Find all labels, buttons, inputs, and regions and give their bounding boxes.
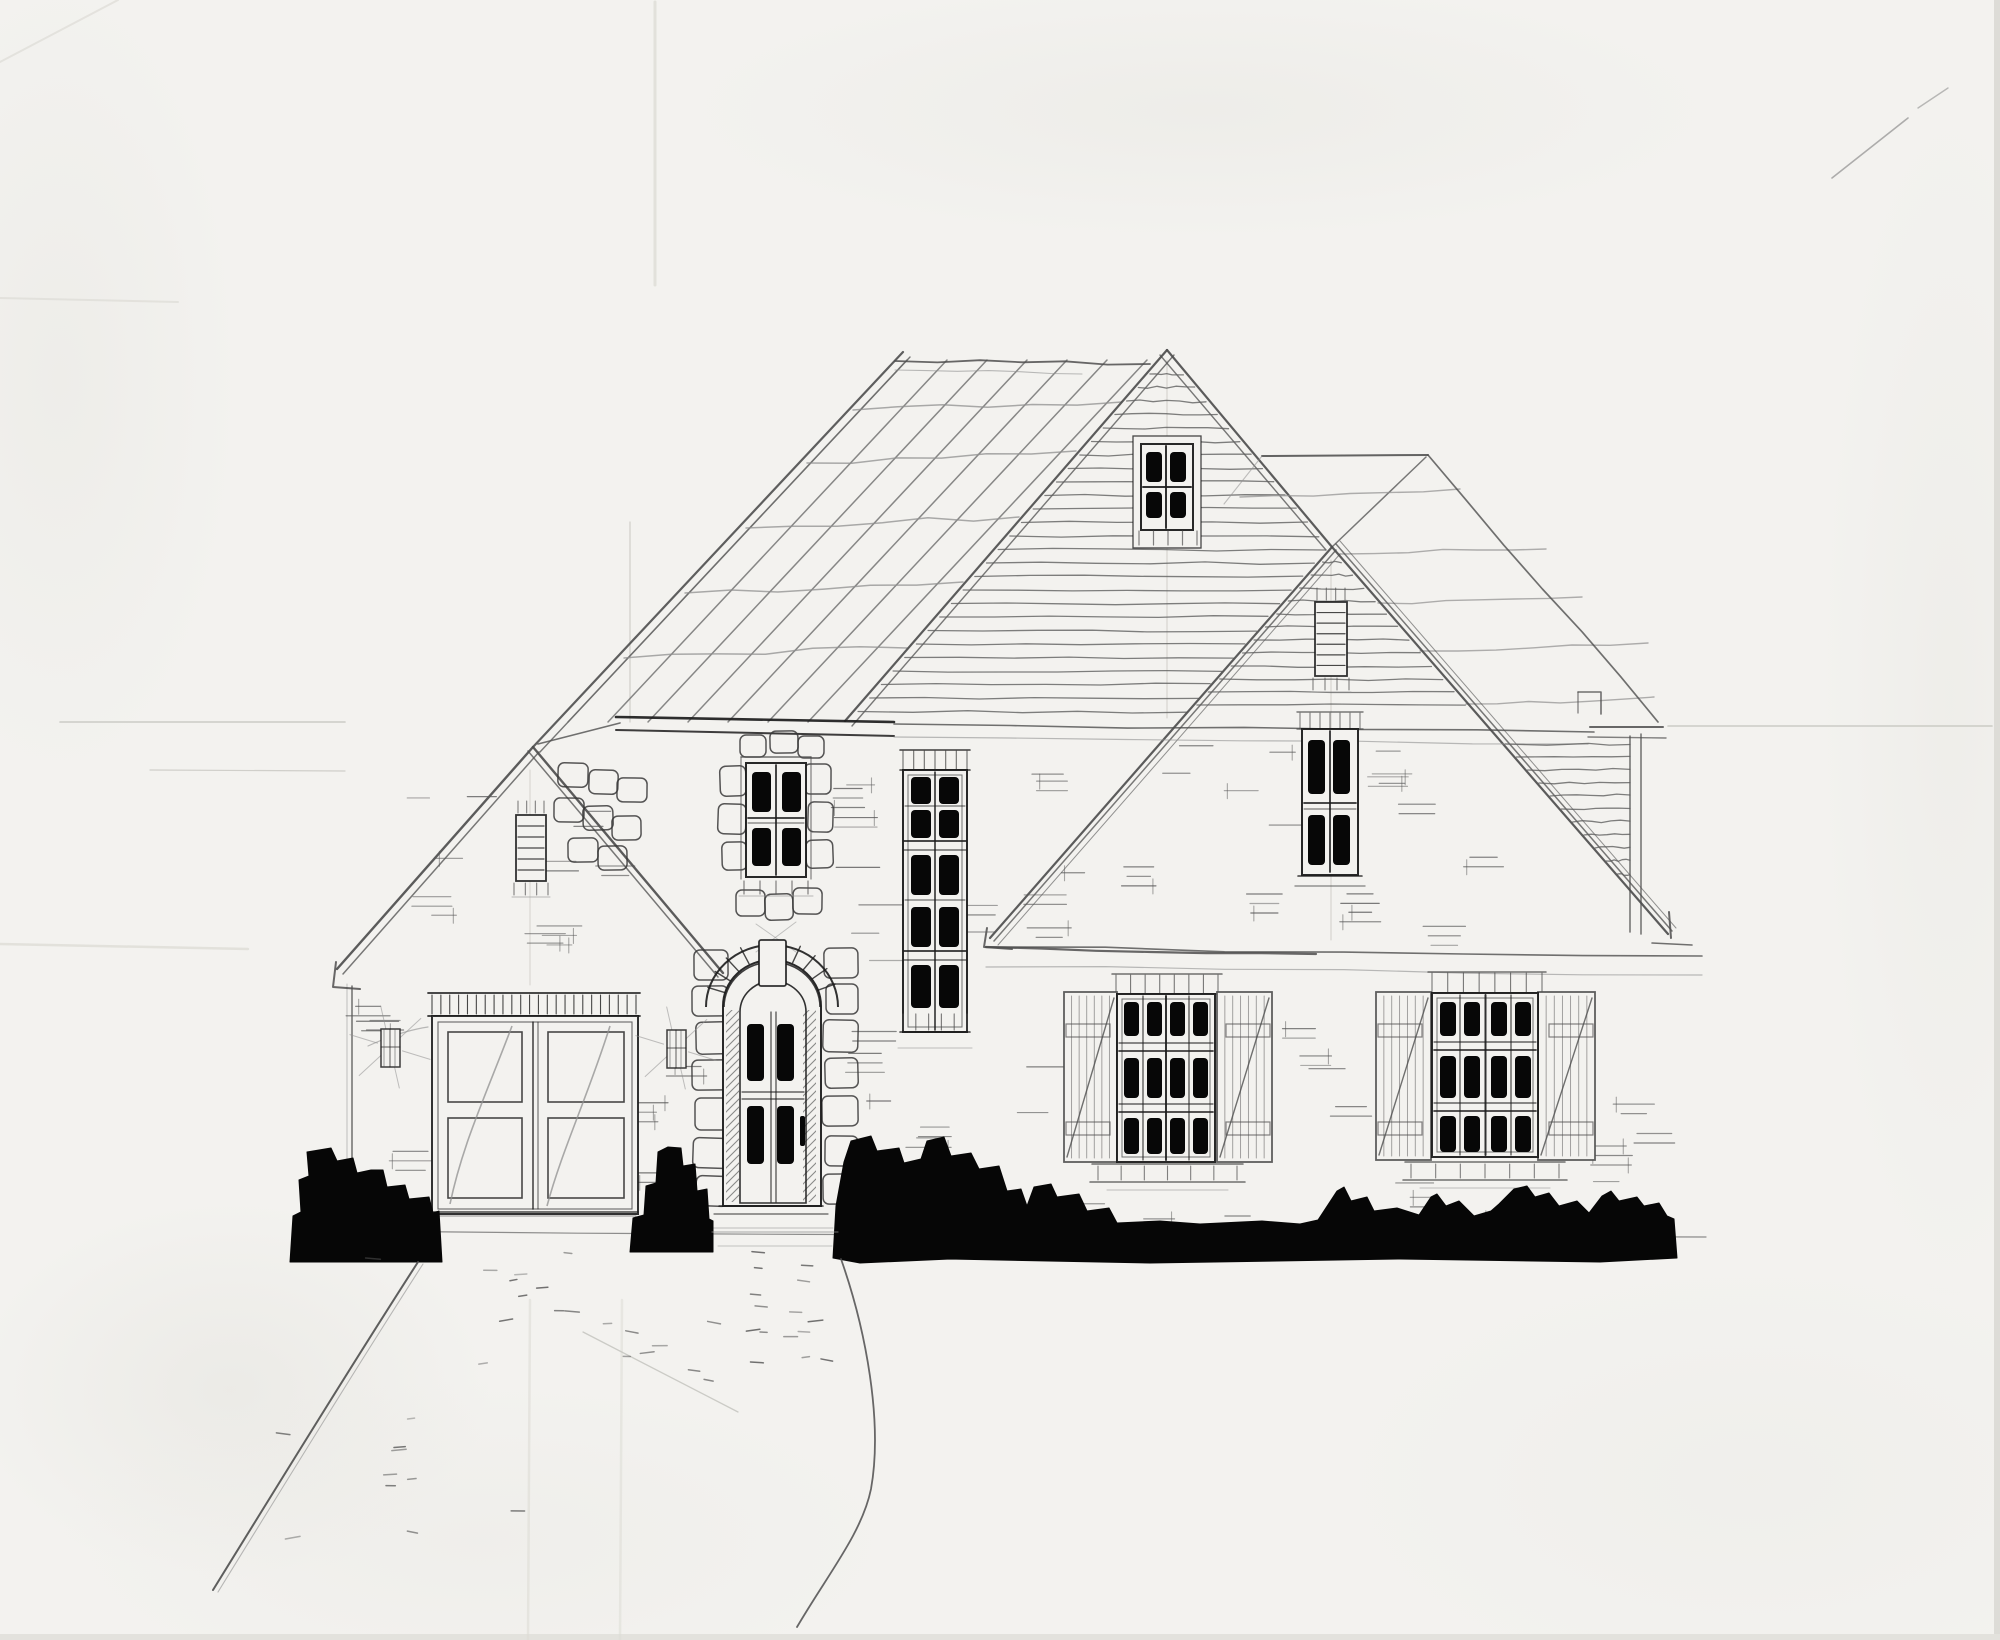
attic-window [1133, 436, 1201, 548]
front-door [710, 960, 833, 1228]
shuttered-window-1 [1064, 974, 1272, 1190]
house-elevation-drawing [0, 0, 2000, 1640]
shuttered-window-2 [1376, 972, 1595, 1188]
garage-door [428, 993, 640, 1216]
right-upper-window [1295, 712, 1365, 886]
gable-vent-right [1311, 588, 1351, 692]
paper-texture [0, 0, 2000, 1640]
elevation-sheet [0, 0, 2000, 1640]
entry-window [739, 757, 813, 896]
stair-window-column [898, 750, 972, 1048]
